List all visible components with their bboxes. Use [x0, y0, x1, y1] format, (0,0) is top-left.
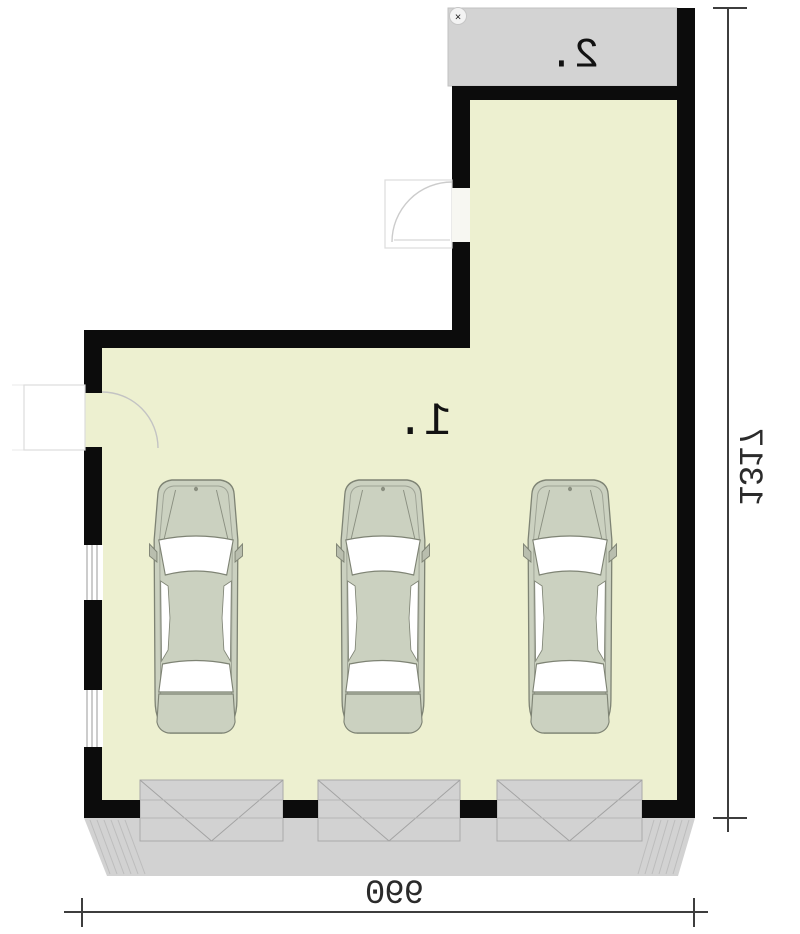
wall-right — [677, 8, 695, 818]
door-top-landing — [385, 180, 452, 248]
garage-doors — [140, 780, 642, 841]
wall-under-room2 — [452, 86, 695, 100]
wall-left-seg3 — [84, 600, 102, 690]
watermark-icon: × — [450, 8, 467, 25]
floor-plan-canvas: 2. 1. 990 1317 × — [0, 0, 800, 934]
wall-bottom-seg1 — [84, 800, 140, 818]
garage-door-3 — [497, 780, 642, 841]
wall-top-main — [84, 330, 470, 348]
car-2 — [337, 480, 430, 733]
window-2 — [83, 690, 103, 747]
garage-door-1 — [140, 780, 283, 841]
room1-label: 1. — [396, 396, 451, 448]
dim-width-text: 990 — [366, 876, 424, 914]
watermark-glyph: × — [455, 13, 462, 25]
dim-ticks-right — [713, 8, 747, 818]
window-1 — [83, 545, 103, 600]
door-top-opening — [452, 188, 470, 242]
door-left-landing — [24, 385, 85, 450]
wall-left-seg1 — [84, 330, 102, 393]
floor-plan-drawing: 2. 1. 990 1317 × — [0, 0, 800, 934]
car-1 — [150, 480, 243, 733]
floor-left-door-gap — [84, 393, 104, 447]
room2-label: 2. — [549, 32, 599, 80]
garage-door-2 — [318, 780, 460, 841]
wall-bottom-pier2 — [460, 800, 497, 818]
car-3 — [524, 480, 617, 733]
wall-bottom-seg2 — [642, 800, 695, 818]
wall-wing-left-upper — [452, 100, 470, 188]
parked-cars — [150, 480, 617, 733]
wall-bottom-pier1 — [283, 800, 318, 818]
dim-height-text: 1317 — [729, 428, 767, 506]
floor-upper-wing — [470, 100, 677, 348]
wall-left-seg2 — [84, 447, 102, 545]
